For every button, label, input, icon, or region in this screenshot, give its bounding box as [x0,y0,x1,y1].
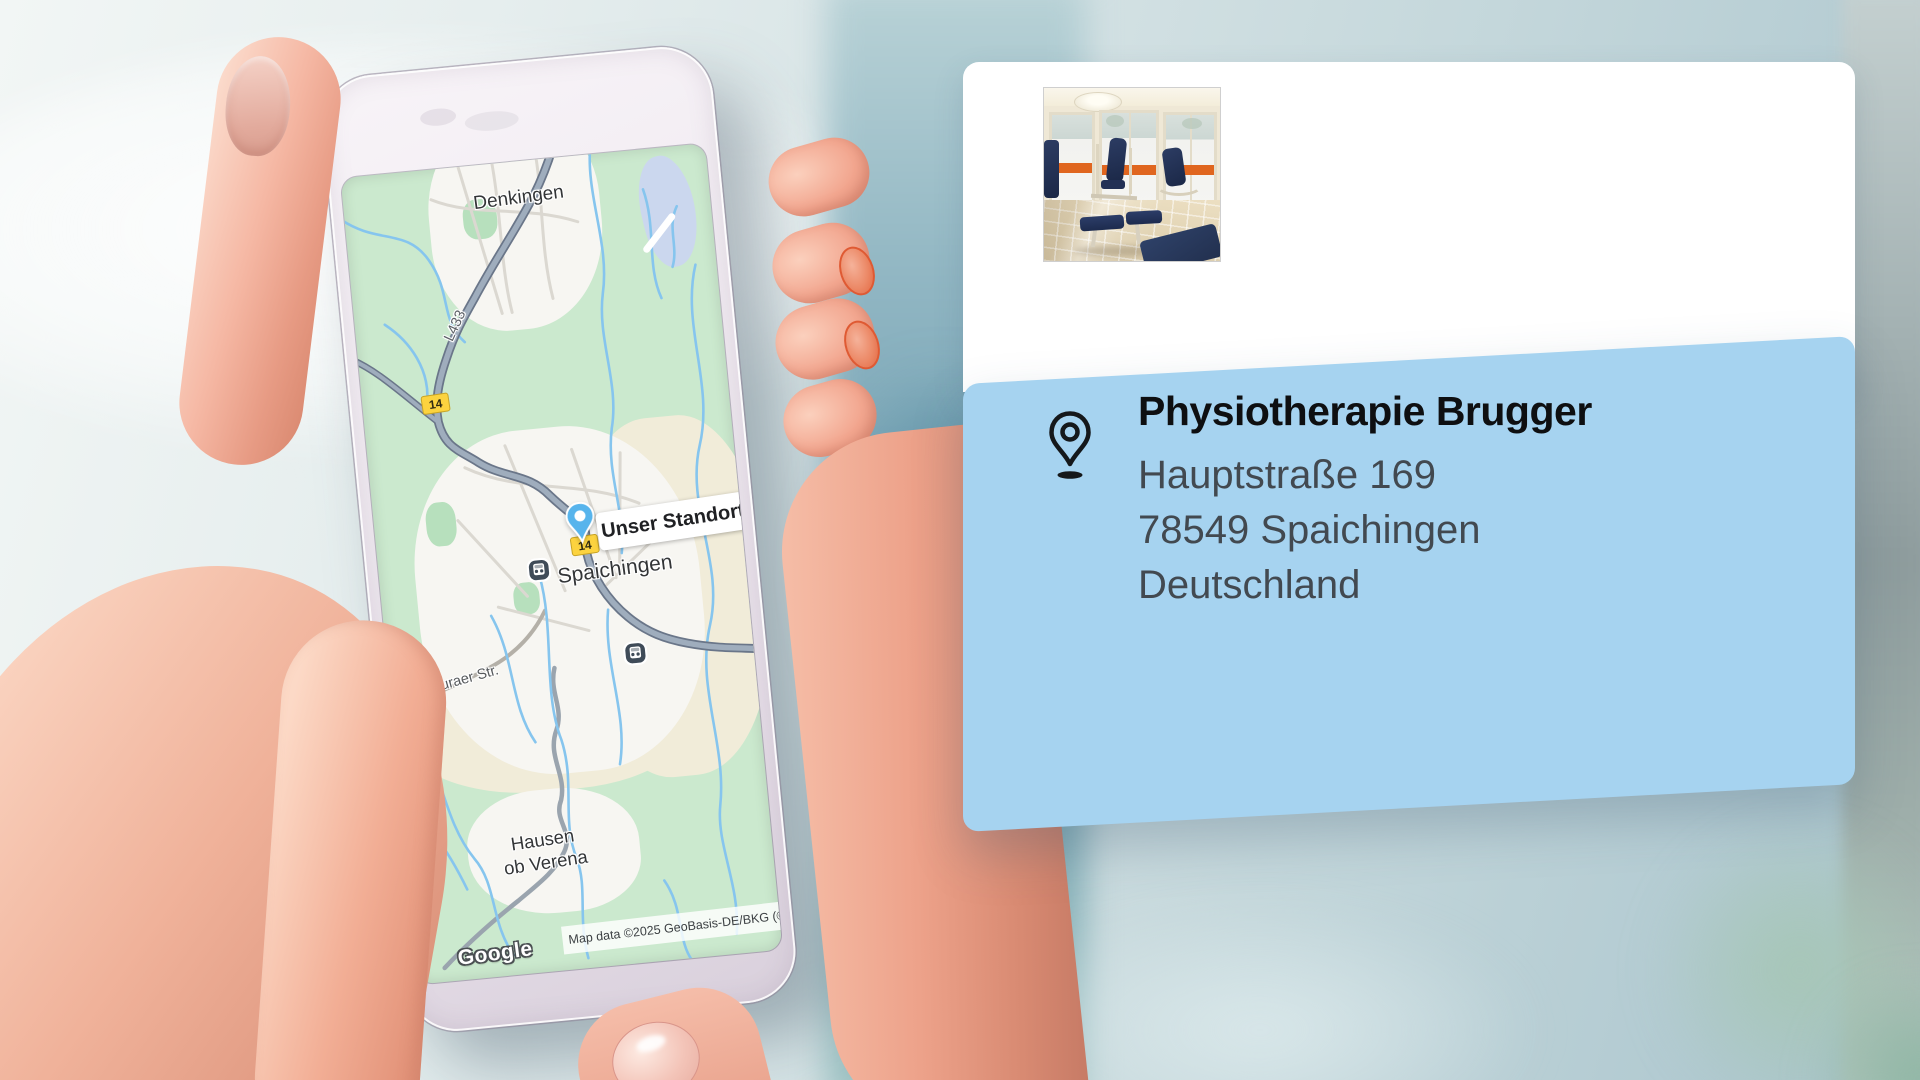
info-card: Physiotherapie Brugger Hauptstraße 169 7… [963,62,1855,842]
photo-gym-machine-seat [1101,180,1125,189]
location-pin-icon [1047,410,1093,482]
hand-fingertip [775,370,885,465]
transit-station-icon[interactable] [622,640,648,666]
bg-soft-blob [980,900,1540,1080]
phone-camera [464,109,520,133]
address-city: 78549 Spaichingen [1138,503,1592,558]
photo-tree-shadow [1182,118,1202,129]
transit-station-icon[interactable] [526,557,552,583]
address-street: Hauptstraße 169 [1138,448,1592,503]
address-country: Deutschland [1138,558,1592,613]
map-screen[interactable]: Denkingen L433 14 14 Spaichingen Hausen … [341,143,783,984]
photo-ceiling [1044,88,1220,106]
bg-plant-blob [1800,980,1920,1080]
photo-machine-frame [1129,148,1132,194]
hand-fingertip [767,290,884,389]
photo-machine-frame [1096,144,1099,196]
photo-tree-shadow [1106,115,1124,127]
fingernail-polished [838,316,886,374]
hand-fingertip [764,214,879,312]
practice-name: Physiotherapie Brugger [1138,388,1592,435]
fingernail [222,53,294,158]
practice-photo [1043,87,1221,262]
photo-gym-machine [1044,140,1059,198]
promo-graphic: Denkingen L433 14 14 Spaichingen Hausen … [0,0,1920,1080]
phone-speaker [419,107,456,127]
fingernail-polished [833,242,881,300]
location-marker-icon[interactable] [563,499,599,546]
hand-index-finger [172,30,347,472]
photo-ceiling-light [1074,92,1122,112]
hand-fingertip [760,129,877,224]
photo-workout-bench [1126,210,1163,225]
bg-plant-blob [1650,820,1920,1080]
address-block: Physiotherapie Brugger Hauptstraße 169 7… [1138,388,1592,613]
